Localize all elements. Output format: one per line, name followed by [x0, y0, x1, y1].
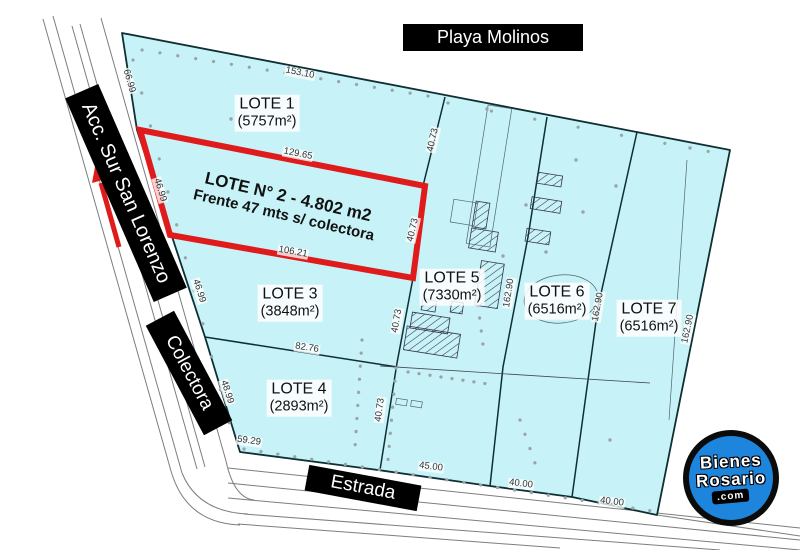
bienesrosario-logo[interactable]: Bienes Rosario .com [683, 430, 779, 526]
lot-label: LOTE 3(3848m²) [258, 285, 323, 322]
logo-dotcom-badge: .com [712, 489, 750, 505]
lot-label: LOTE 6(6516m²) [525, 283, 590, 320]
parcel-map [0, 0, 800, 550]
lot-label: LOTE 5(7330m²) [420, 269, 485, 306]
plot-map-page: Playa Molinos Acc. Sur San Lorenzo Colec… [0, 0, 800, 550]
lot-label: LOTE 1(5757m²) [235, 95, 300, 132]
road-label-playa-molinos: Playa Molinos [403, 24, 583, 51]
logo-word-2: Rosario [695, 469, 766, 490]
lot-label: LOTE 7(6516m²) [617, 300, 682, 337]
lot-label: LOTE 4(2893m²) [267, 380, 332, 417]
